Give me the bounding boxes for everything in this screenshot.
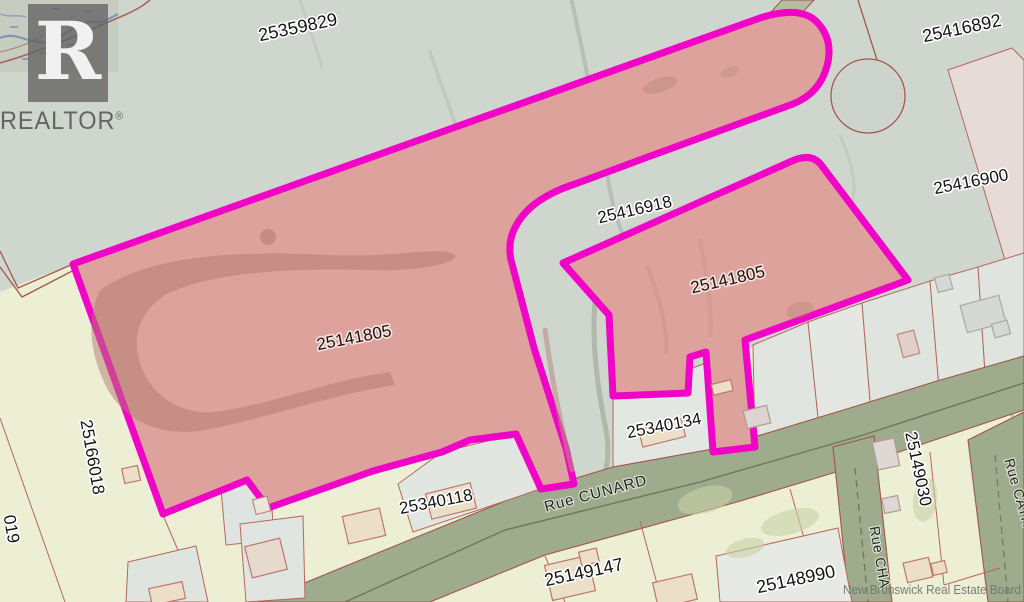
- board-watermark: New Brunswick Real Estate Board: [843, 582, 1021, 597]
- parcel-map-canvas[interactable]: 25359829 25416892 25416900 25416918 2514…: [0, 0, 1024, 602]
- cul-de-sac: [831, 59, 905, 133]
- map-viewport[interactable]: 25359829 25416892 25416900 25416918 2514…: [0, 0, 1024, 602]
